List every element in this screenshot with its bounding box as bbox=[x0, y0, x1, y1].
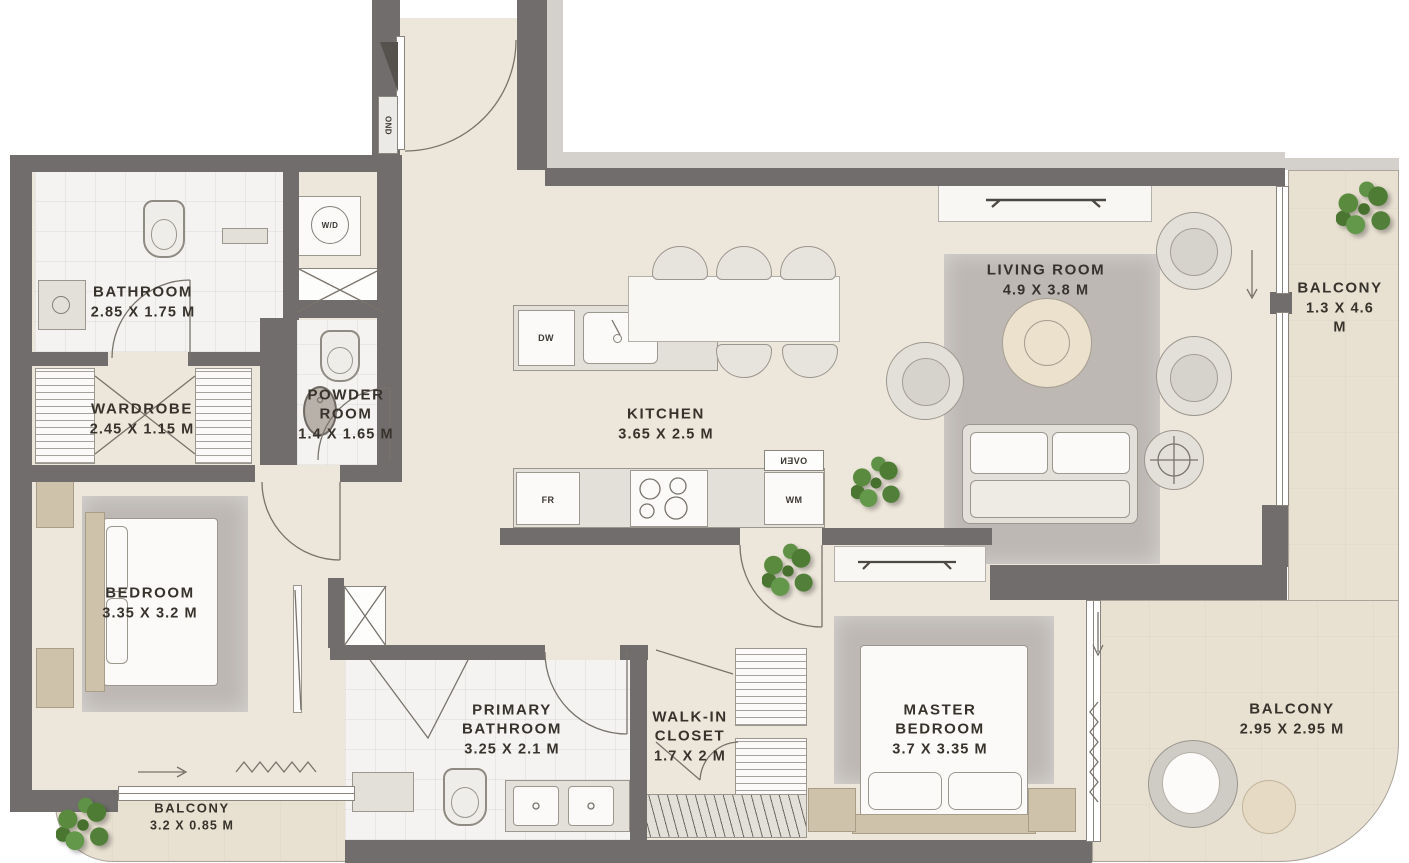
room-label-bathroom: BATHROOM2.85 X 1.75 M bbox=[91, 284, 196, 323]
room-label-kitchen: KITCHEN3.65 X 2.5 M bbox=[618, 406, 713, 445]
wall-shadow bbox=[1285, 158, 1399, 170]
wall-segment bbox=[10, 155, 32, 812]
tv-console bbox=[938, 184, 1152, 222]
sofa-seat bbox=[970, 480, 1130, 518]
floor-vestibule bbox=[398, 18, 532, 170]
sofa-cushion bbox=[970, 432, 1048, 474]
wardrobe-closet bbox=[35, 368, 95, 464]
wall-segment bbox=[328, 578, 344, 648]
pillow bbox=[868, 772, 942, 810]
nightstand bbox=[36, 648, 74, 708]
plant-icon bbox=[762, 542, 814, 600]
pillow bbox=[106, 526, 128, 592]
wall-segment bbox=[545, 168, 1285, 186]
oven: OVEN bbox=[764, 450, 824, 471]
wall-segment bbox=[340, 465, 402, 482]
sink-icon bbox=[52, 296, 70, 314]
room-label-master-bedroom: MASTER BEDROOM3.7 X 3.35 M bbox=[892, 701, 987, 758]
shaft bbox=[344, 586, 386, 646]
wardrobe-closet bbox=[195, 368, 252, 464]
window bbox=[118, 786, 355, 801]
room-label-walk-in-closet: WALK-IN CLOSET1.7 X 2 M bbox=[652, 708, 727, 765]
mirror bbox=[293, 585, 302, 713]
room-label-powder-room: POWDER ROOM1.4 X 1.65 M bbox=[298, 386, 393, 443]
duct-label: OND bbox=[378, 96, 398, 154]
washer-dryer-label: W/D bbox=[306, 216, 354, 234]
toilet-icon bbox=[443, 768, 487, 826]
wall-segment bbox=[188, 352, 283, 366]
plant-icon bbox=[851, 455, 901, 511]
armchair-seat bbox=[1170, 228, 1218, 276]
plant-icon bbox=[56, 796, 110, 854]
room-label-wardrobe: WARDROBE2.45 X 1.15 M bbox=[90, 401, 195, 440]
room-label-balcony-right: BALCONY1.3 X 4.6 M bbox=[1297, 279, 1382, 336]
pillow bbox=[948, 772, 1022, 810]
washing-machine-label: WM bbox=[770, 490, 818, 510]
room-label-balcony-bottom-left: BALCONY3.2 X 0.85 M bbox=[150, 800, 234, 834]
wall-segment bbox=[990, 565, 1287, 600]
wall-segment bbox=[10, 155, 402, 172]
faucet-icon bbox=[613, 334, 622, 343]
wall-segment bbox=[283, 172, 299, 320]
master-headboard bbox=[852, 814, 1036, 834]
toilet-icon bbox=[143, 200, 185, 258]
coffee-table-ring bbox=[1024, 320, 1070, 366]
closet-unit bbox=[735, 648, 807, 726]
wall-shadow bbox=[547, 0, 563, 170]
wall-segment bbox=[30, 352, 108, 366]
wall-segment bbox=[630, 645, 647, 842]
armchair-seat bbox=[1170, 354, 1218, 402]
sink-icon bbox=[513, 786, 559, 826]
kitchen-island bbox=[628, 276, 840, 342]
lounge-cushion bbox=[1162, 752, 1220, 814]
dishwasher-label: DW bbox=[524, 328, 568, 348]
window bbox=[1276, 186, 1289, 294]
wall-segment bbox=[1270, 292, 1292, 314]
master-tv-console bbox=[834, 546, 986, 582]
wall-segment bbox=[822, 528, 992, 545]
room-label-living-room: LIVING ROOM4.9 X 3.8 M bbox=[987, 262, 1105, 301]
toilet-icon bbox=[320, 330, 360, 382]
wall-segment bbox=[500, 528, 740, 545]
plant-icon bbox=[1336, 180, 1392, 238]
nightstand bbox=[808, 788, 856, 832]
pouf bbox=[1242, 780, 1296, 834]
sink-icon bbox=[568, 786, 614, 826]
wall-segment bbox=[330, 645, 545, 660]
sliding-door bbox=[1086, 600, 1101, 842]
wall-segment bbox=[295, 300, 402, 318]
nightstand bbox=[1028, 788, 1076, 832]
wall-segment bbox=[1262, 505, 1288, 567]
wall-segment bbox=[345, 840, 1092, 863]
wall-shadow bbox=[547, 152, 1285, 168]
bath-shelf bbox=[352, 772, 414, 812]
oven-label: OVEN bbox=[780, 456, 807, 466]
window bbox=[1276, 312, 1289, 506]
cooktop bbox=[630, 470, 708, 527]
sofa-cushion bbox=[1052, 432, 1130, 474]
room-label-bedroom: BEDROOM3.35 X 3.2 M bbox=[102, 585, 197, 624]
fridge-label: FR bbox=[522, 490, 574, 510]
wall-segment bbox=[10, 465, 255, 482]
room-label-primary-bathroom: PRIMARY BATHROOM3.25 X 2.1 M bbox=[462, 701, 562, 758]
floor-plan: DW FR WM OVEN W/D OND bbox=[0, 0, 1409, 863]
side-table bbox=[1144, 430, 1204, 490]
wall-segment bbox=[517, 0, 547, 170]
armchair-seat bbox=[902, 358, 950, 406]
closet-hanging-rail bbox=[645, 794, 807, 838]
wall-segment bbox=[260, 318, 297, 465]
room-label-balcony-bottom-right: BALCONY2.95 X 2.95 M bbox=[1240, 701, 1345, 740]
shower-shelf bbox=[222, 228, 268, 244]
